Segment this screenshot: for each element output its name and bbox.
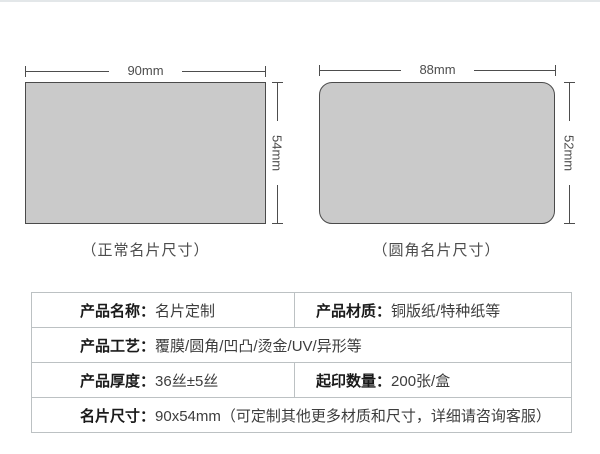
normal-card-width-dimension: 90mm — [25, 64, 266, 78]
normal-card-height-dimension: 54mm — [270, 82, 284, 224]
dimension-tick — [564, 223, 575, 224]
dimension-line — [320, 70, 401, 71]
dimension-tick — [272, 223, 283, 224]
spec-label: 产品厚度 — [80, 370, 140, 391]
spec-colon: ： — [140, 370, 155, 391]
dimension-line — [277, 83, 278, 121]
product-spec-table: 产品名称：名片定制 产品材质：铜版纸/特种纸等 产品工艺：覆膜/圆角/凹凸/烫金… — [31, 292, 572, 433]
top-divider-line — [0, 0, 600, 2]
rounded-card-caption: （圆角名片尺寸） — [318, 239, 555, 260]
spec-value: 200张/盒 — [391, 370, 450, 391]
normal-card-caption: （正常名片尺寸） — [25, 239, 266, 260]
spec-label: 产品工艺 — [80, 335, 140, 356]
product-spec-panel: 90mm 54mm （正常名片尺寸） 88mm 52mm （圆角名片尺寸） 产品… — [0, 0, 600, 454]
rounded-card-width-label: 88mm — [401, 63, 473, 77]
spec-colon: ： — [376, 300, 391, 321]
dimension-line — [569, 185, 570, 223]
table-row: 产品厚度：36丝±5丝 起印数量：200张/盒 — [32, 363, 571, 398]
spec-colon: ： — [140, 300, 155, 321]
dimension-tick — [555, 65, 556, 76]
dimension-line — [474, 70, 555, 71]
spec-value: 90x54mm（可定制其他更多材质和尺寸，详细请咨询客服） — [155, 405, 551, 426]
spec-colon: ： — [140, 405, 155, 426]
spec-label: 起印数量 — [316, 370, 376, 391]
spec-product-material: 产品材质：铜版纸/特种纸等 — [294, 293, 571, 327]
table-row: 产品名称：名片定制 产品材质：铜版纸/特种纸等 — [32, 293, 571, 328]
dimension-tick — [265, 66, 266, 77]
spec-value: 名片定制 — [155, 300, 215, 321]
rounded-card-height-label: 52mm — [562, 121, 577, 185]
spec-value: 覆膜/圆角/凹凸/烫金/UV/异形等 — [155, 335, 362, 356]
spec-product-craft: 产品工艺：覆膜/圆角/凹凸/烫金/UV/异形等 — [32, 328, 571, 362]
dimension-line — [277, 185, 278, 223]
spec-value: 铜版纸/特种纸等 — [391, 300, 500, 321]
spec-min-order-quantity: 起印数量：200张/盒 — [294, 363, 571, 397]
spec-colon: ： — [140, 335, 155, 356]
rounded-card-height-dimension: 52mm — [562, 82, 576, 224]
spec-product-thickness: 产品厚度：36丝±5丝 — [32, 363, 294, 397]
spec-label: 产品名称 — [80, 300, 140, 321]
spec-label: 产品材质 — [316, 300, 376, 321]
spec-value: 36丝±5丝 — [155, 370, 218, 391]
table-row: 名片尺寸：90x54mm（可定制其他更多材质和尺寸，详细请咨询客服） — [32, 398, 571, 432]
normal-card-width-label: 90mm — [109, 64, 181, 78]
spec-card-size: 名片尺寸：90x54mm（可定制其他更多材质和尺寸，详细请咨询客服） — [32, 398, 571, 432]
rounded-card-width-dimension: 88mm — [319, 63, 556, 77]
table-row: 产品工艺：覆膜/圆角/凹凸/烫金/UV/异形等 — [32, 328, 571, 363]
dimension-line — [182, 71, 265, 72]
spec-label: 名片尺寸 — [80, 405, 140, 426]
dimension-line — [26, 71, 109, 72]
spec-colon: ： — [376, 370, 391, 391]
normal-card-height-label: 54mm — [270, 121, 285, 185]
spec-product-name: 产品名称：名片定制 — [32, 293, 294, 327]
rounded-business-card-shape — [319, 82, 555, 224]
normal-business-card-shape — [25, 82, 266, 224]
dimension-line — [569, 83, 570, 121]
